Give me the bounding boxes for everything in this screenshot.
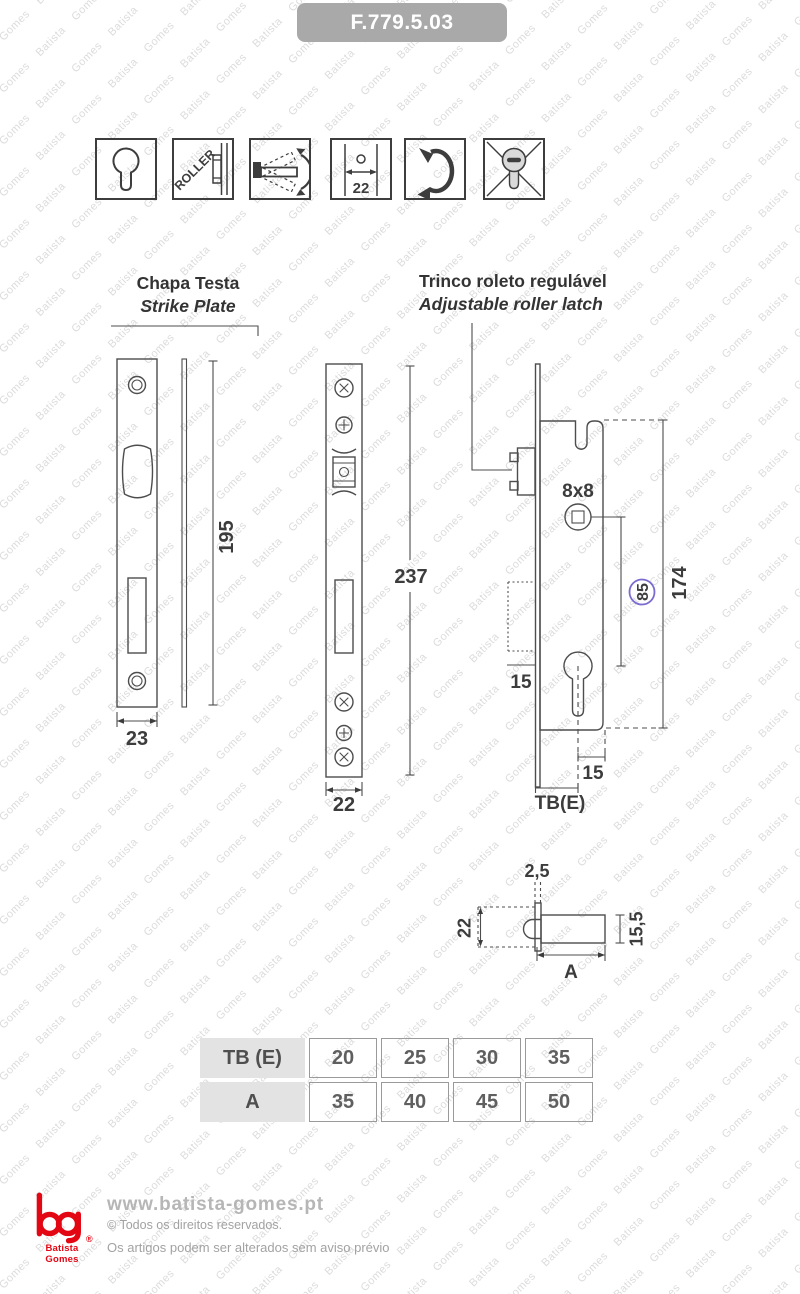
dim-22-small-text: 22 bbox=[455, 918, 475, 938]
strike-plate-label-pt: Chapa Testa bbox=[100, 272, 276, 295]
dimensions-table: TB (E) 20 25 30 35 A 35 40 45 50 bbox=[200, 1038, 593, 1122]
product-code: F.779.5.03 bbox=[350, 11, 453, 35]
dim-a-text: A bbox=[564, 962, 578, 983]
dim-195-text: 195 bbox=[216, 520, 238, 553]
euro-cylinder-icon bbox=[95, 138, 157, 200]
datasheet-page: Batista Gomes Batista Gomes Batista Gome… bbox=[0, 0, 800, 1294]
adjustable-glyph bbox=[251, 140, 309, 198]
dim-85: 85 bbox=[617, 517, 655, 666]
euro-cylinder-glyph bbox=[97, 140, 155, 198]
faceplate-front-drawing bbox=[326, 364, 362, 777]
reversible-glyph bbox=[406, 140, 464, 198]
dim-15-5-text: 15,5 bbox=[627, 911, 647, 946]
dim-tbe: TB(E) bbox=[535, 783, 586, 814]
roller-latch-icon: ROLLER bbox=[172, 138, 234, 200]
strike-plate-label-en: Strike Plate bbox=[100, 295, 276, 318]
latch-case-drawing: 2,5 22 15,5 A bbox=[455, 861, 647, 983]
dim-15-bottom-text: 15 bbox=[582, 763, 604, 784]
dim-195: 195 bbox=[209, 361, 239, 705]
table-cell: 35 bbox=[525, 1038, 593, 1078]
table-row-label: TB (E) bbox=[200, 1038, 305, 1078]
table-cell: 45 bbox=[453, 1082, 521, 1122]
batista-gomes-logo bbox=[34, 1192, 88, 1244]
table-cell: 50 bbox=[525, 1082, 593, 1122]
dim-15-bottom: 15 bbox=[578, 753, 605, 785]
no-cylinder-glyph bbox=[485, 140, 543, 198]
dim-23-text: 23 bbox=[126, 728, 148, 750]
dim-2-5-text: 2,5 bbox=[524, 861, 549, 881]
faceplate-width-glyph: 22 bbox=[332, 140, 390, 198]
latch-label-leader bbox=[472, 323, 512, 470]
faceplate-width-icon: 22 bbox=[330, 138, 392, 200]
dim-15-left-text: 15 bbox=[510, 672, 532, 693]
strike-label-bracket bbox=[111, 326, 258, 336]
dim-237-text: 237 bbox=[394, 566, 427, 588]
table-row-label: A bbox=[200, 1082, 305, 1122]
cylinder-not-included-icon bbox=[483, 138, 545, 200]
strike-plate-front-drawing bbox=[117, 359, 157, 707]
website-text: www.batista-gomes.pt bbox=[107, 1194, 324, 1216]
reversible-icon bbox=[404, 138, 466, 200]
faceplate-width-icon-label: 22 bbox=[353, 180, 370, 197]
table-cell: 40 bbox=[381, 1082, 449, 1122]
table-cell: 30 bbox=[453, 1038, 521, 1078]
strike-plate-label: Chapa Testa Strike Plate bbox=[100, 272, 276, 318]
dim-174: 174 bbox=[659, 420, 692, 728]
dim-tbe-text: TB(E) bbox=[535, 793, 586, 814]
roller-icon-label: ROLLER bbox=[174, 147, 218, 193]
roller-glyph: ROLLER bbox=[174, 140, 232, 198]
dim-22-faceplate: 22 bbox=[326, 782, 362, 816]
roller-latch-label: Trinco roleto regulável Adjustable rolle… bbox=[419, 270, 639, 316]
copyright-text: © Todos os direitos reservados. bbox=[107, 1218, 282, 1232]
adjustable-direction-icon bbox=[249, 138, 311, 200]
disclaimer-text: Os artigos podem ser alterados sem aviso… bbox=[107, 1240, 390, 1255]
table-cell: 25 bbox=[381, 1038, 449, 1078]
dim-85-text: 85 bbox=[635, 583, 652, 601]
roller-latch-label-pt: Trinco roleto regulável bbox=[419, 270, 639, 293]
dim-8x8-text: 8x8 bbox=[562, 481, 594, 502]
dim-174-text: 174 bbox=[669, 565, 691, 599]
table-cell: 35 bbox=[309, 1082, 377, 1122]
dim-22-text: 22 bbox=[333, 794, 355, 816]
product-code-badge: F.779.5.03 bbox=[297, 3, 507, 42]
dim-237: 237 bbox=[394, 366, 427, 775]
dim-23: 23 bbox=[117, 712, 157, 750]
lock-body-drawing bbox=[507, 364, 661, 792]
logo-wordmark: Batista Gomes bbox=[30, 1243, 94, 1265]
footer: ® Batista Gomes www.batista-gomes.pt © T… bbox=[0, 1190, 800, 1270]
roller-latch-label-en: Adjustable roller latch bbox=[419, 293, 639, 316]
table-cell: 20 bbox=[309, 1038, 377, 1078]
strike-plate-side-drawing bbox=[182, 359, 187, 707]
